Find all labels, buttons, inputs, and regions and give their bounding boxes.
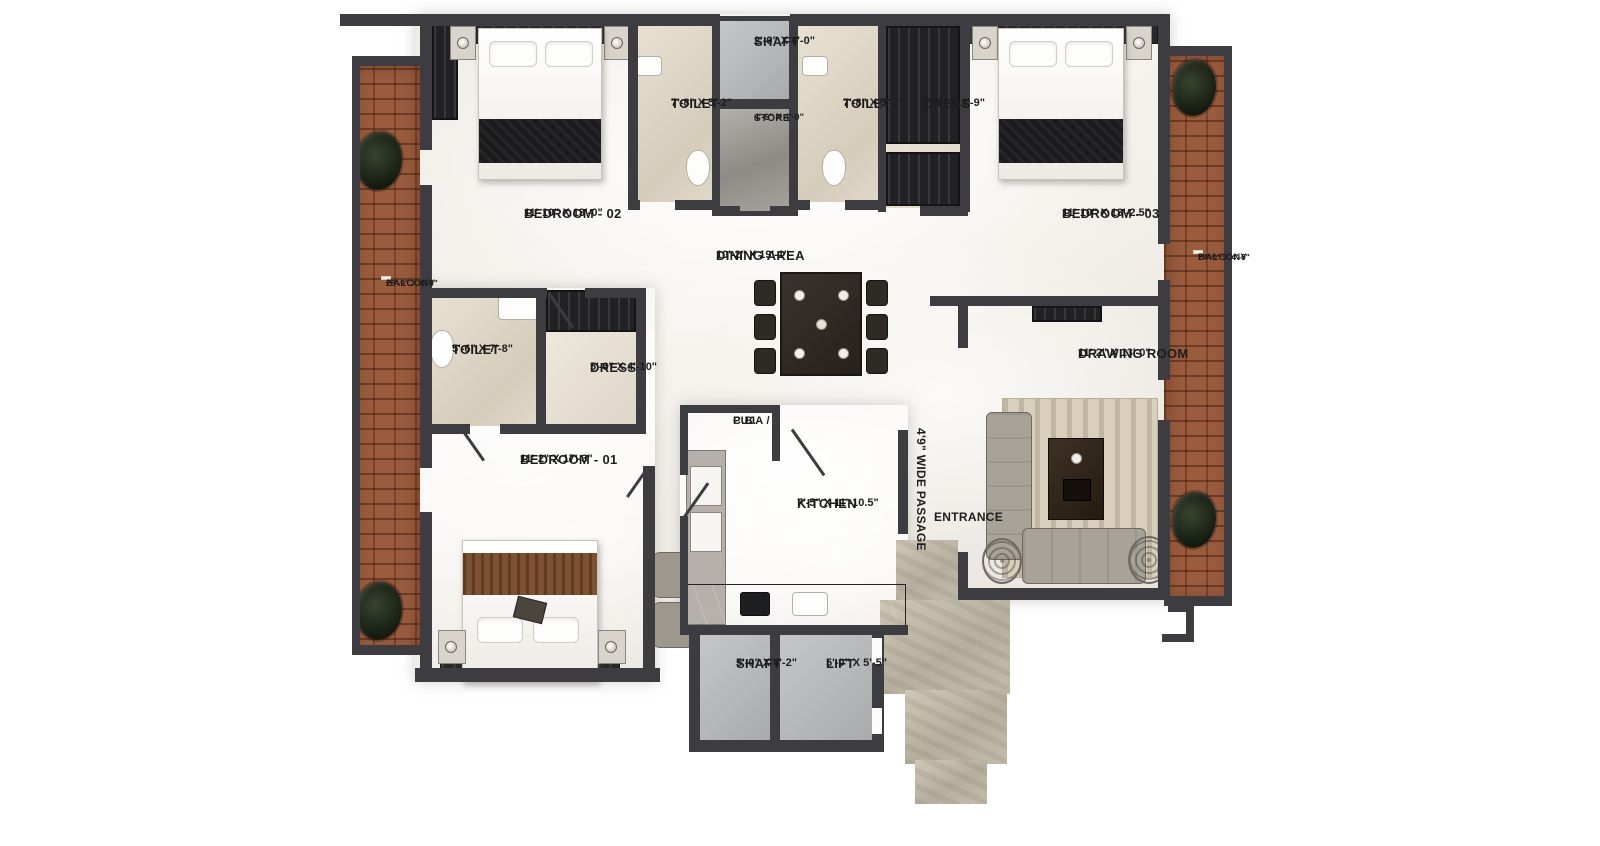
room-dims: 11'-2" X 17'-3" xyxy=(520,452,593,466)
wall xyxy=(585,288,640,298)
room-dims: 5'-6" X 7'-8" xyxy=(452,342,513,356)
tv-console xyxy=(1032,306,1102,322)
entrance-path xyxy=(905,690,1007,764)
wall xyxy=(680,405,688,475)
wall xyxy=(352,56,360,655)
wall xyxy=(712,14,720,216)
washbasin xyxy=(498,296,538,320)
nightstand xyxy=(598,630,626,664)
lamp-icon xyxy=(1133,37,1145,49)
room-dims: 11'-10" X 13'-0" xyxy=(524,206,603,220)
wall xyxy=(415,668,660,682)
wall xyxy=(1164,46,1232,56)
label-balcony-left: BALCONY 28'-9" X 4'-0" xyxy=(381,276,391,280)
room-name: C.B. xyxy=(733,414,756,428)
coffee-table xyxy=(1048,438,1104,520)
nightstand xyxy=(972,26,998,60)
dining-chair xyxy=(754,280,776,306)
blanket xyxy=(479,119,601,163)
room-name: 4'9" WIDE PASSAGE xyxy=(912,428,928,551)
wall xyxy=(845,200,886,210)
wall xyxy=(536,288,546,434)
wall xyxy=(958,296,968,348)
nightstand xyxy=(1126,26,1152,60)
washbasin xyxy=(802,56,828,76)
wall xyxy=(340,14,715,26)
wall xyxy=(960,14,970,212)
wall xyxy=(680,405,780,413)
label-balcony-right: BALCONY 24'-0" X 4'-0" xyxy=(1193,250,1203,254)
room-dims: 7'-5" X 11'-10.5" xyxy=(797,496,879,510)
bedroom-02-bed xyxy=(478,28,602,180)
centerpiece xyxy=(816,319,827,330)
wall xyxy=(680,516,688,633)
step-edge xyxy=(1162,634,1194,642)
plate xyxy=(794,348,805,359)
wall xyxy=(352,56,428,66)
plate xyxy=(794,290,805,301)
wall xyxy=(1224,46,1232,606)
wall xyxy=(878,14,886,212)
room-dims: 11'-10" X 13'-2.5" xyxy=(1062,206,1150,220)
nightstand xyxy=(450,26,476,60)
washbasin xyxy=(636,56,662,76)
lamp-icon xyxy=(445,641,457,653)
wall xyxy=(420,512,432,682)
room-dims: 5'-0" X 4'-2" xyxy=(736,656,797,670)
room-dims: 10'-2" X 19'-1" xyxy=(716,248,789,262)
wall xyxy=(1158,420,1170,600)
dining-chair xyxy=(866,348,888,374)
room-dims: 7'-8" X 3'-9" xyxy=(924,96,985,110)
room-dims: 7'-8" X 5'-3" xyxy=(843,96,904,110)
dining-chair xyxy=(754,314,776,340)
toilet-wc xyxy=(686,150,710,186)
plate xyxy=(838,348,849,359)
floor-plan: SHAFT 2'-9" X 4'-0" TOILET 7'-8" X 5'-2"… xyxy=(0,0,1600,846)
lift-box xyxy=(775,626,877,748)
wall xyxy=(352,645,428,655)
wall xyxy=(628,14,638,210)
kitchen-hob xyxy=(740,592,770,616)
lift-door-gap xyxy=(872,708,882,734)
kitchen-appliance xyxy=(690,512,722,552)
wall xyxy=(680,625,908,635)
wall xyxy=(643,466,655,674)
lamp-icon xyxy=(457,37,469,49)
dining-chair xyxy=(866,314,888,340)
wall xyxy=(712,206,740,216)
wall xyxy=(689,740,884,752)
pillow xyxy=(545,41,593,67)
nightstand xyxy=(604,26,630,60)
pillow xyxy=(477,617,523,643)
wall xyxy=(770,626,778,748)
dress-top-wardrobe xyxy=(886,26,960,144)
wall xyxy=(770,206,798,216)
shaft-top-box xyxy=(714,16,794,104)
wall xyxy=(1158,14,1170,244)
nightstand xyxy=(438,630,466,664)
blanket xyxy=(463,553,597,595)
wall xyxy=(500,424,640,434)
wall xyxy=(420,288,432,468)
wall xyxy=(794,14,1170,26)
entrance-path xyxy=(915,760,987,804)
room-dims: 5'-6" X 4'-10" xyxy=(590,360,657,374)
plant-icon xyxy=(982,538,1022,584)
room-dims: 5'-0" X 5'-5" xyxy=(826,656,887,670)
pillow xyxy=(1009,41,1057,67)
room-dims: 7'-8" X 5'-2" xyxy=(671,96,732,110)
room-dims: 11'-2" X 13'-0" xyxy=(1078,346,1151,360)
pillow xyxy=(489,41,537,67)
wall xyxy=(1158,280,1170,380)
room-dims: 2'-9" X 4'-0" xyxy=(754,34,815,48)
wall xyxy=(689,626,697,748)
plate xyxy=(838,290,849,301)
dining-table xyxy=(780,272,862,376)
dress-top-wardrobe xyxy=(886,152,960,206)
wall xyxy=(432,288,547,298)
toilet-wc xyxy=(430,330,454,368)
room-dims: 4'-6" X 4'-0" xyxy=(754,112,804,124)
wall xyxy=(772,405,780,461)
dining-chair xyxy=(866,280,888,306)
lamp-icon xyxy=(605,641,617,653)
blanket xyxy=(999,119,1123,163)
lamp-icon xyxy=(979,37,991,49)
room-name: ENTRANCE xyxy=(934,510,1003,526)
wall xyxy=(798,200,810,210)
decor xyxy=(1071,453,1082,464)
bedroom-01-bed xyxy=(462,540,598,682)
pillow xyxy=(1065,41,1113,67)
dining-chair xyxy=(754,348,776,374)
wall xyxy=(420,14,432,150)
kitchen-sink xyxy=(792,592,828,616)
room-dims: 24'-0" X 4'-0" xyxy=(1198,252,1250,263)
wall xyxy=(958,588,1170,600)
toilet-wc xyxy=(822,150,846,186)
shaft-bottom-box xyxy=(695,626,775,748)
lamp-icon xyxy=(611,37,623,49)
wall xyxy=(628,200,640,210)
wall xyxy=(898,430,908,534)
room-dims: 28'-9" X 4'-0" xyxy=(386,278,438,289)
wall xyxy=(420,185,432,288)
bedroom-03-bed xyxy=(998,28,1124,180)
decor xyxy=(1063,479,1091,501)
wall xyxy=(920,206,968,216)
